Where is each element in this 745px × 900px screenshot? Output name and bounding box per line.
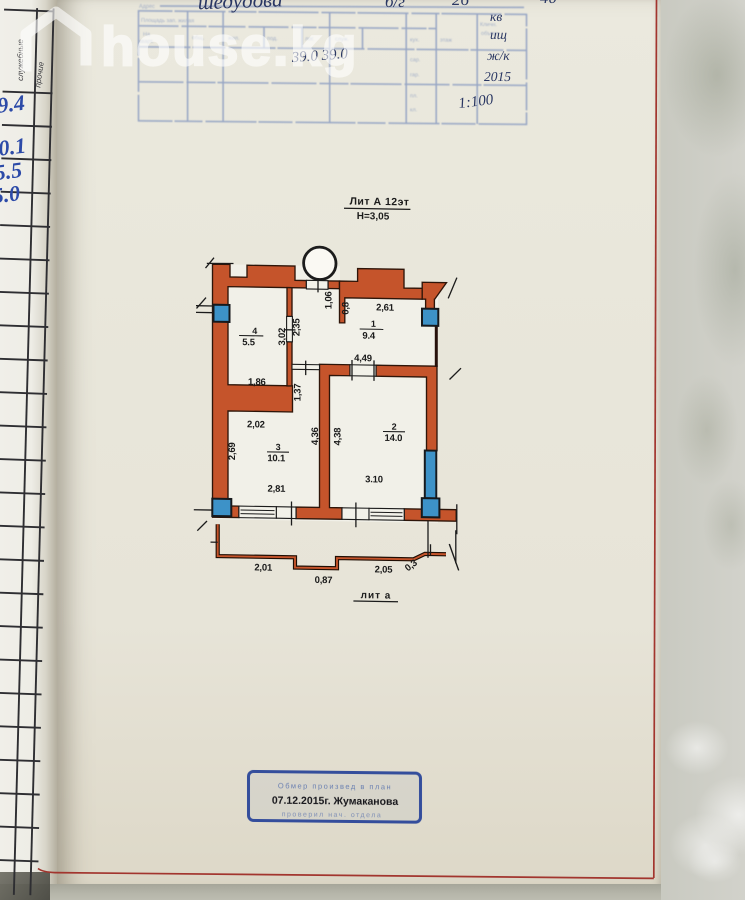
svg-text:40: 40 (540, 0, 558, 7)
svg-text:3,02: 3,02 (277, 328, 288, 346)
svg-text:2,81: 2,81 (268, 484, 287, 495)
svg-text:4,49: 4,49 (354, 353, 372, 364)
svg-text:0,87: 0,87 (315, 575, 333, 586)
svg-text:проверил нач. отдела: проверил нач. отдела (282, 811, 383, 819)
svg-text:14.0: 14.0 (385, 433, 403, 444)
svg-text:9.4: 9.4 (362, 331, 376, 342)
svg-text:5.5: 5.5 (242, 337, 256, 348)
svg-text:2,05: 2,05 (375, 564, 394, 575)
svg-text:10.1: 10.1 (267, 453, 286, 464)
svg-text:1,06: 1,06 (324, 291, 335, 309)
svg-text:3.10: 3.10 (365, 474, 383, 485)
svg-text:1,37: 1,37 (293, 384, 304, 402)
svg-text:Лит А 12эт: Лит А 12эт (350, 195, 410, 208)
svg-text:1: 1 (371, 319, 376, 329)
svg-text:5.0: 5.0 (0, 180, 21, 208)
svg-text:2,35: 2,35 (292, 318, 303, 337)
svg-text:4,36: 4,36 (310, 427, 321, 445)
svg-text:2,69: 2,69 (227, 442, 238, 460)
svg-text:Обмер произвед в план: Обмер произвед в план (278, 781, 392, 791)
svg-text:2,02: 2,02 (247, 419, 265, 430)
svg-text:2,61: 2,61 (376, 302, 395, 313)
svg-text:4,38: 4,38 (332, 428, 343, 446)
svg-text:3: 3 (276, 442, 281, 452)
svg-text:Н=3,05: Н=3,05 (357, 211, 390, 223)
svg-text:лит а: лит а (361, 590, 392, 602)
svg-text:4: 4 (252, 326, 257, 336)
svg-text:2,01: 2,01 (254, 562, 273, 573)
svg-text:1,86: 1,86 (248, 377, 266, 388)
svg-text:07.12.2015г. Жумаканова: 07.12.2015г. Жумаканова (272, 795, 399, 808)
svg-text:2: 2 (392, 422, 397, 432)
svg-text:0,8: 0,8 (341, 302, 352, 315)
